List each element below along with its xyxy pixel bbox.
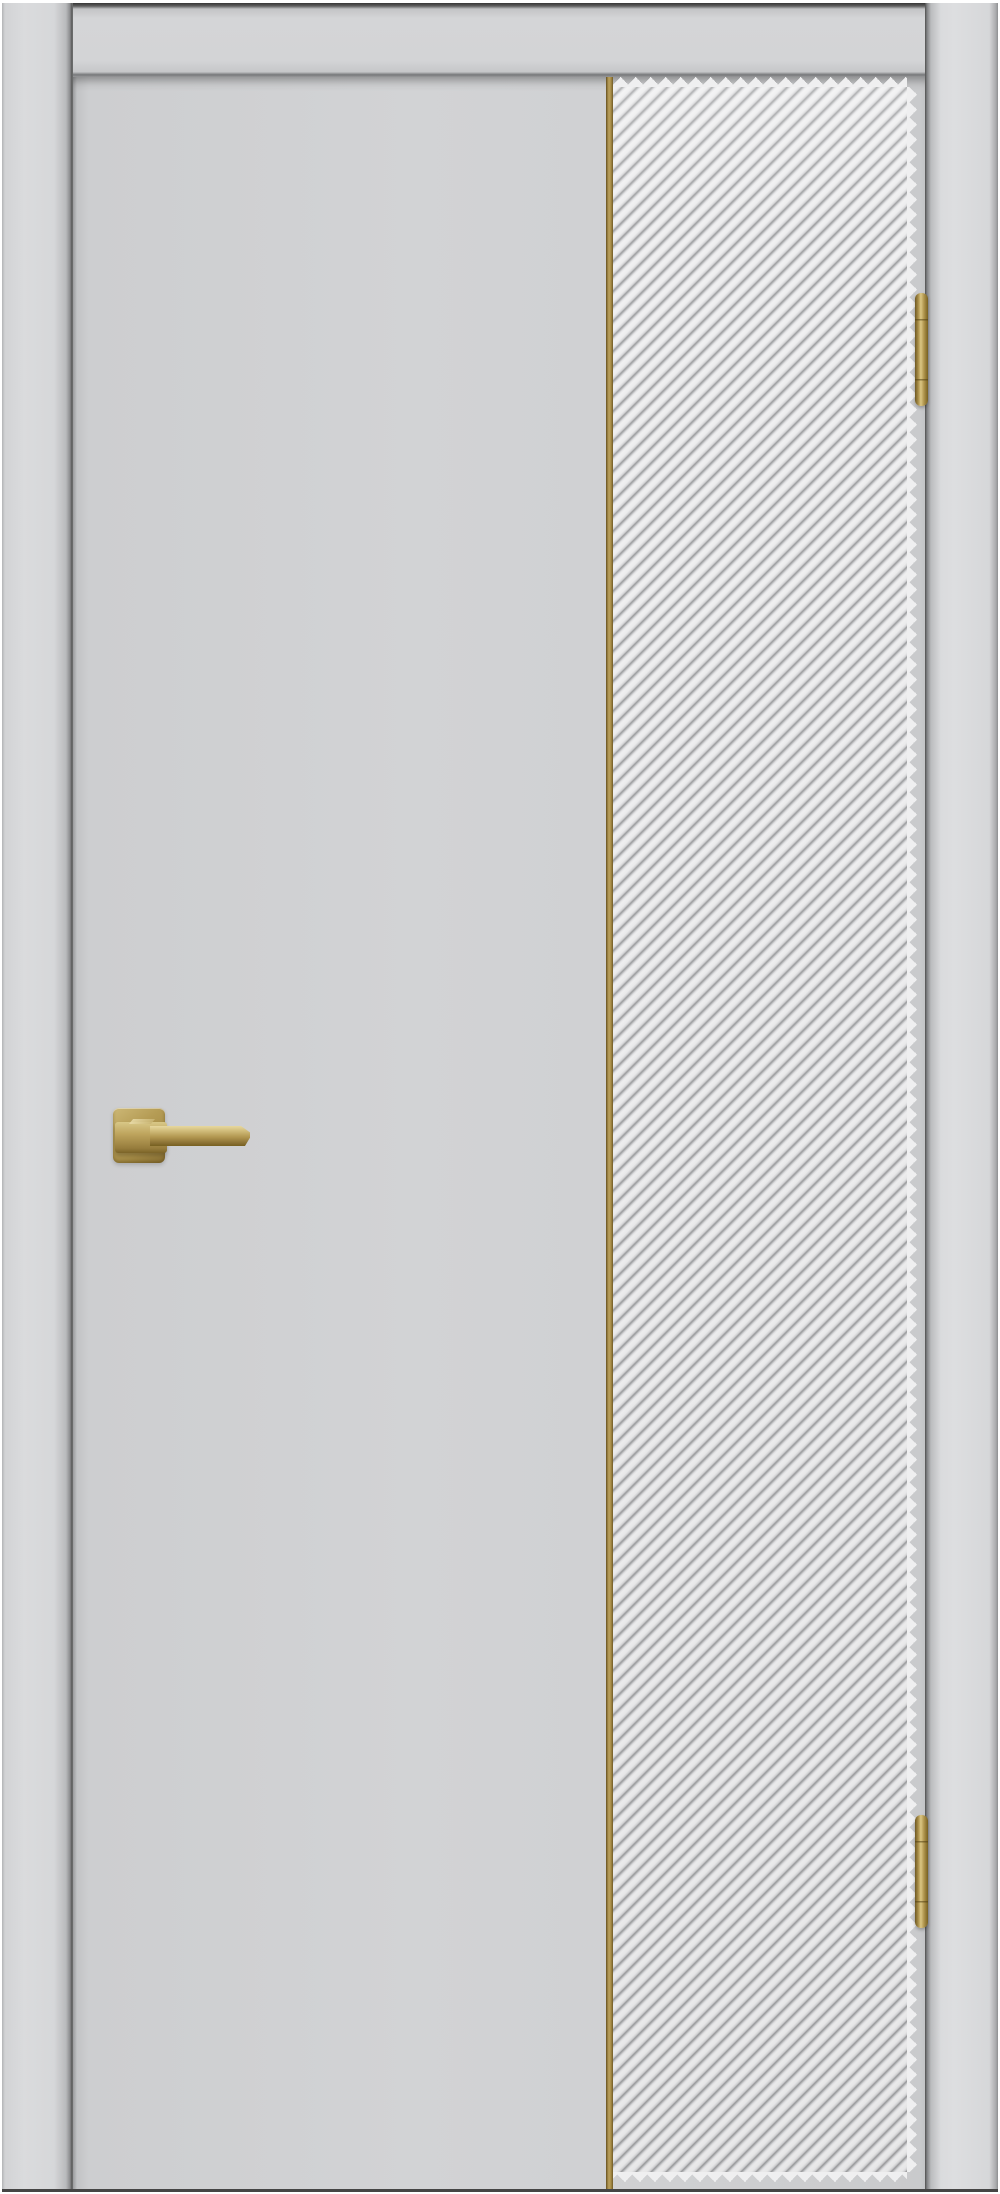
- handle-lever: [150, 1126, 250, 1146]
- door-frame-header: [73, 3, 925, 77]
- fluted-panel-teeth-bottom: [613, 2172, 907, 2182]
- handle-glint-highlight: [129, 1119, 155, 1124]
- door-product-photo: [0, 0, 1000, 2194]
- hinge-top: [915, 293, 928, 406]
- fluted-panel-teeth-top: [613, 77, 907, 87]
- frame-bottom-edge: [2, 2189, 998, 2192]
- fluted-panel: [613, 87, 907, 2172]
- door-frame-right-jamb: [925, 3, 998, 2191]
- brass-inlay-strip: [606, 77, 613, 2190]
- door-frame-left-jamb: [2, 3, 73, 2191]
- hinge-bottom: [915, 1815, 928, 1928]
